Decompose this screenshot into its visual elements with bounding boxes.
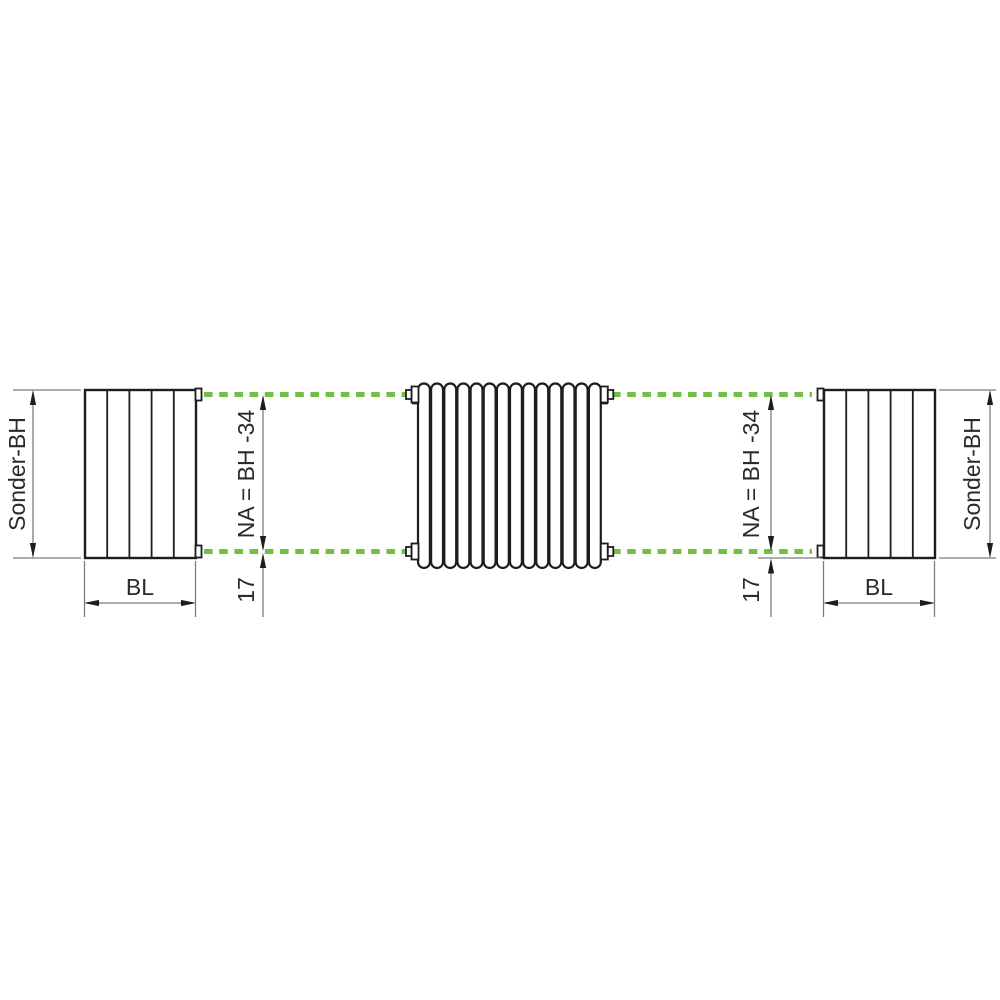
arrowhead-up [768,559,774,574]
radiator-nipple-top-right [601,387,614,403]
radiator-tube [510,384,522,569]
radiator-tube [418,384,430,569]
radiator-nipple-bottom-left [406,544,419,560]
radiator-tube [471,384,483,569]
label-sonder-bh-right: Sonder-BH [959,417,985,531]
left-panel-body [85,390,196,558]
label-na-left: NA = BH -34 [233,410,259,539]
arrowhead-left [823,600,838,606]
radiator-tube [484,384,496,569]
radiator-tube [431,384,443,569]
arrowhead-left [84,600,99,606]
right-panel-nipple-bottom [818,546,824,558]
radiator-tube [589,384,601,569]
label-bl-left: BL [126,574,154,600]
left-edge-offset-dimension: 17 [233,553,266,617]
arrowhead-up [768,395,774,410]
arrowhead-up [30,390,36,405]
radiator-nipple-bottom-right [601,544,614,560]
radiator-tube [497,384,509,569]
right-panel-body [824,390,935,558]
radiator-tube [457,384,469,569]
arrowhead-down [30,543,36,558]
left-nipple-distance-dimension: NA = BH -34 [233,395,266,551]
right-edge-offset-dimension: 17 [738,558,821,617]
left-width-dimension: BL [84,561,196,617]
left-panel-block [85,389,202,559]
radiator-tube [563,384,575,569]
arrowhead-down [768,536,774,551]
arrowhead-down [260,536,266,551]
arrowhead-down [987,543,993,558]
right-panel-block [818,389,936,559]
radiator-dimension-diagram: Sonder-BH BL NA = BH -34 17 NA = BH -34 … [0,0,1000,1000]
diagram-canvas: Sonder-BH BL NA = BH -34 17 NA = BH -34 … [0,0,1000,1000]
radiator-tube [549,384,561,569]
arrowhead-up [987,390,993,405]
label-na-right: NA = BH -34 [738,410,764,539]
label-sonder-bh-left: Sonder-BH [4,417,30,531]
radiator-tube [523,384,535,569]
arrowhead-up [260,395,266,410]
tubular-radiator [406,384,613,569]
label-bl-right: BL [865,574,893,600]
right-nipple-distance-dimension: NA = BH -34 [738,395,774,551]
label-17-left: 17 [233,577,259,603]
left-panel-nipple-top [196,389,202,401]
right-width-dimension: BL [823,561,935,617]
radiator-tube [576,384,588,569]
right-panel-nipple-top [818,389,824,401]
arrowhead-up [260,553,266,568]
right-height-dimension: Sonder-BH [939,390,996,558]
arrowhead-right [920,600,935,606]
left-height-dimension: Sonder-BH [4,390,81,558]
radiator-tube [444,384,456,569]
label-17-right: 17 [738,577,764,603]
radiator-tube [536,384,548,569]
arrowhead-right [181,600,196,606]
radiator-nipple-top-left [406,387,419,403]
left-panel-nipple-bottom [196,546,202,558]
